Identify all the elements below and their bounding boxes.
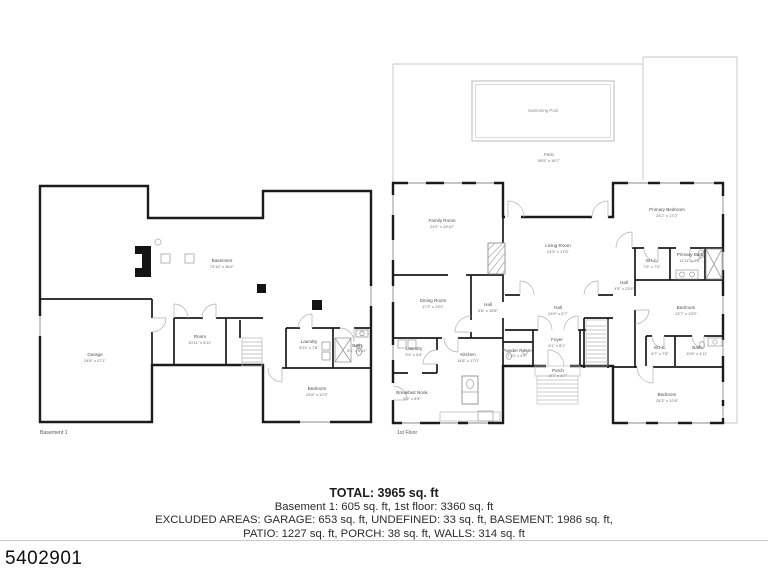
room-dims: 24'3" x 12'8" [656,398,679,403]
room-label: W.I.C. [654,345,667,350]
primary-sink-2 [690,272,695,277]
utility-marker [155,239,161,245]
post-outline-2 [185,254,194,263]
kitchen-range [478,411,493,421]
room-dims: 14'8" x 17'0" [457,358,480,363]
room-label: Primary Bedroom [649,207,685,212]
excluded-areas-line1: EXCLUDED AREAS: GARAGE: 653 sq. ft, UNDE… [0,514,768,527]
room-dims: 8'1" x 6'11" [347,348,367,353]
room-dims: 24'5" x 17'6" [547,249,570,254]
room-label: Patio [544,152,555,157]
room-dims: 73'10" x 36'4" [210,264,235,269]
room-dims: 6'8" x 15'8" [478,308,498,313]
room-label: Primary Bath [677,252,704,257]
room-dims: 11'11" x 7'0" [679,258,701,263]
post-solid-1 [257,284,266,293]
area-summary: TOTAL: 3965 sq. ft Basement 1: 605 sq. f… [0,486,768,541]
room-dims: 4'5" x 23'9" [614,286,634,291]
listing-strip: 5402901 [0,540,768,578]
total-area: TOTAL: 3965 sq. ft [0,486,768,501]
floor-areas: Basement 1: 605 sq. ft, 1st floor: 3360 … [0,501,768,514]
room-label: Kitchen [460,352,476,357]
room-dims: 24'8" x 27'1" [84,358,107,363]
room-dims: 9'0" x 8'5" [403,396,421,401]
room-label: Family Room [428,218,455,223]
room-label: Garage [87,352,103,357]
room-label: Laundry [406,346,423,351]
room-dims: 7'6" x 7'0" [643,264,661,269]
room-label: Bedroom [658,392,677,397]
room-dims: 10'11" x 8'11" [188,340,212,345]
fireplace-basement [135,246,151,277]
room-label: Dining Room [420,298,447,303]
kitchen-island [462,376,478,404]
fireplace-hatch [488,243,505,274]
basement-washer [322,342,330,350]
basement-plan: Basement 73'10" x 36'4" Garage 24'8" x 2… [37,186,375,436]
room-dims: 8'7" x 4'7" [549,373,567,378]
room-label: Bedroom [677,305,696,310]
room-label: Breakfast Nook [396,390,428,395]
basement-door-arcs [152,304,354,382]
room-dims: 9'0" x 8'6" [405,352,423,357]
interior-stairs [586,320,608,366]
room-label: Hall [554,305,562,310]
room-dims: 58'5" x 16'7" [538,158,561,163]
room-label: Basement [212,258,233,263]
basement-stair-treads [242,342,262,362]
listing-number: 5402901 [0,541,768,570]
basement-caption: Basement 1 [40,430,68,436]
room-label: Laundry [301,339,318,344]
room-label: Bath [692,345,702,350]
room-label: Hall [620,280,628,285]
basement-sink [360,331,364,335]
basement-dryer [322,352,330,360]
interior-stair-treads [586,326,608,362]
room-dims: 23'8" x 12'3" [306,392,329,397]
room-dims: 6'7" x 7'8" [651,351,669,356]
post-solid-2 [312,300,322,310]
room-dims: 24'6" x 6'7" [548,311,568,316]
room-label: Bedroom [308,386,327,391]
basement-labels: Basement 73'10" x 36'4" Garage 24'8" x 2… [40,258,367,436]
room-dims: 17'3" x 13'0" [422,304,445,309]
room-dims: 24'0" x 19'10" [430,224,455,229]
room-dims: 9'1" x 8'1" [548,343,566,348]
floor-plan-page: { "listing": { "number": "5402901" }, "s… [0,0,768,577]
room-label: Hall [484,302,492,307]
first-floor-interior-walls [393,217,723,373]
room-dims: 10'8" x 4'11" [686,351,708,356]
room-dims: 24'2" x 17'2" [656,213,679,218]
post-outline-1 [161,254,170,263]
bath2-sink [713,340,717,344]
first-floor-caption: 1st Floor [397,430,417,436]
room-label: Room [194,334,206,339]
primary-sink-1 [680,272,685,277]
first-floor-plan: Swimming Pool Patio 58'5" x 16'7" Family… [390,57,737,436]
pool-label: Swimming Pool [528,108,558,113]
first-floor-labels: Swimming Pool Patio 58'5" x 16'7" Family… [396,108,708,436]
room-label: Living Room [545,243,571,248]
room-label: Foyer [551,337,563,342]
room-dims: 7'10" x 4'9" [507,353,527,358]
room-label: W.I.C. [646,258,659,263]
room-dims: 13'7" x 13'0" [675,311,698,316]
porch-step-treads [537,380,578,400]
room-dims: 8'11" x 7'8" [299,345,319,350]
